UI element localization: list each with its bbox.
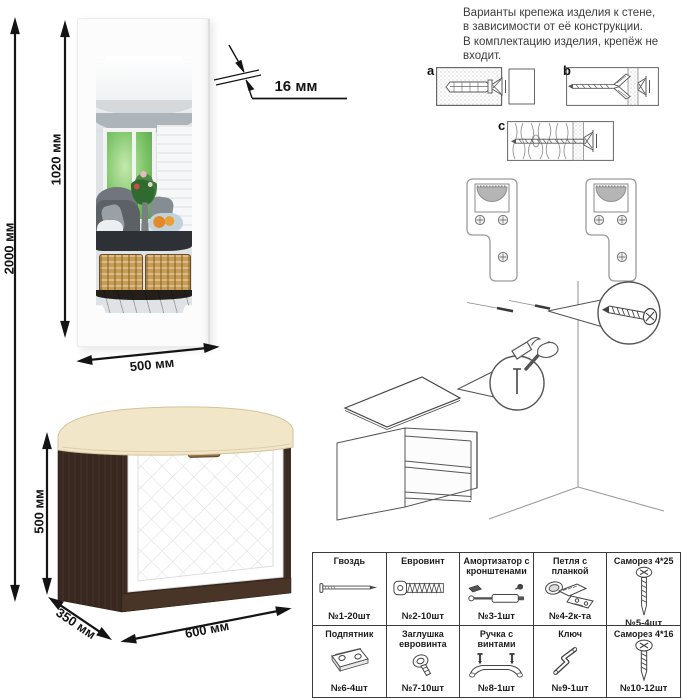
glide-icon (327, 639, 371, 683)
nail-icon (318, 566, 380, 610)
hardware-item-cap: Заглушка евровинта №7-10шт (387, 626, 460, 698)
hammer-callout (458, 338, 558, 410)
hinge-icon (541, 577, 599, 611)
dimension-arrows (12, 21, 288, 642)
dim-bench-height: 500 мм (32, 482, 47, 542)
screw-callout (548, 282, 660, 344)
hardware-item-screw-4x16: Саморез 4*16 №10-12шт (607, 626, 680, 698)
hardware-item-glide: Подпятник №6-4шт (313, 626, 386, 698)
gas-strut-icon (465, 577, 527, 611)
mounting-note: Варианты крепежа изделия к стене, в зави… (463, 6, 681, 63)
wall-type-c-label: c (498, 118, 505, 133)
hardware-item-screw-4x25: Саморез 4*25 №5-4шт (607, 553, 680, 625)
hex-key-icon (549, 639, 591, 683)
handle-icon (466, 649, 526, 683)
screw-4x16-icon (633, 639, 655, 683)
dim-total-height: 2000 мм (2, 221, 17, 277)
dim-thickness: 16 мм (266, 78, 326, 95)
hardware-item-key: Ключ №9-1шт (534, 626, 607, 698)
bench-carcass (337, 428, 477, 520)
cap-icon (411, 649, 435, 683)
wall-screw-icon (467, 301, 550, 312)
wall-type-b-label: b (563, 63, 571, 78)
instruction-sheet: Варианты крепежа изделия к стене, в зави… (0, 0, 683, 700)
screw-4x25-icon (633, 566, 655, 618)
hardware-item-nail: Гвоздь №1-20шт (313, 553, 386, 625)
hardware-table: Гвоздь №1-20шт Евровинт (312, 552, 681, 698)
back-panel (345, 377, 460, 430)
hardware-item-euroscrew: Евровинт №2-10шт (387, 553, 460, 625)
wall-type-a-label: a (427, 63, 434, 78)
hardware-item-handle: Ручка с винтами №8-1шт (460, 626, 533, 698)
dim-mirror-height: 1020 мм (49, 130, 64, 190)
hand-icon (538, 342, 558, 357)
hardware-item-hinge: Петля с планкой №4-2к-та (534, 553, 607, 625)
hardware-item-gas-strut: Амортизатор с кронштенами №3-1шт (460, 553, 533, 625)
euroscrew-icon (392, 566, 454, 610)
